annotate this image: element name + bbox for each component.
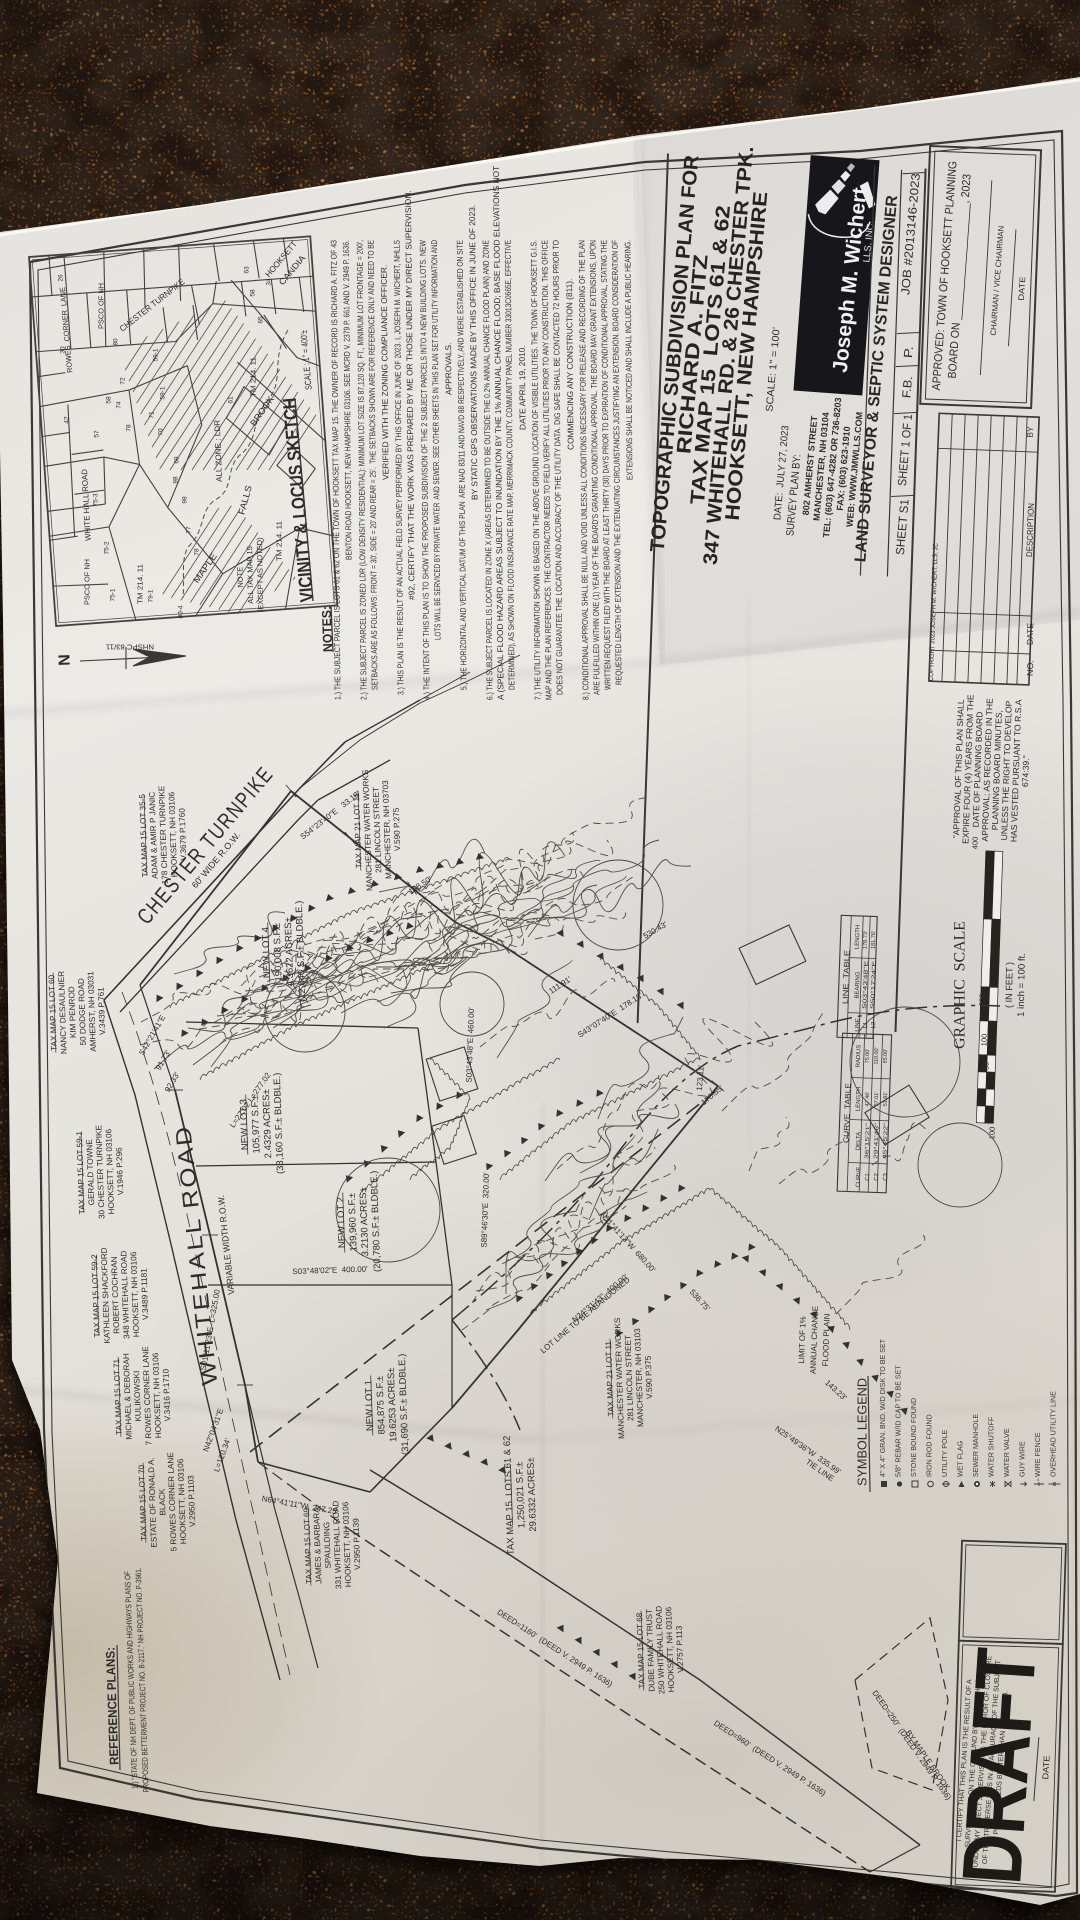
svg-text:181.76': 181.76': [871, 931, 878, 949]
svg-text:WATER SHUTOFF: WATER SHUTOFF: [988, 1416, 996, 1477]
svg-text:TM 214. 11: TM 214. 11: [137, 564, 144, 604]
svg-text:LINE TABLE: LINE TABLE: [841, 950, 852, 1004]
svg-text:26: 26: [57, 274, 64, 282]
svg-text:200: 200: [977, 994, 986, 1007]
svg-text:36°15'21": 36°15'21": [864, 1123, 871, 1159]
svg-text:34: 34: [265, 278, 272, 286]
svg-text:0: 0: [984, 1111, 993, 1115]
svg-text:45°45'22": 45°45'22": [882, 1123, 889, 1159]
svg-text:110.00': 110.00': [874, 1047, 881, 1064]
svg-text:EXTENSIONS SHALL BE NOTICED AN: EXTENSIONS SHALL BE NOTICED AND SHALL IN…: [622, 240, 634, 480]
svg-text:65.00': 65.00': [883, 1049, 890, 1064]
svg-text:63: 63: [243, 266, 250, 274]
svg-text:50: 50: [981, 1062, 990, 1071]
svg-text:79-1: 79-1: [147, 589, 154, 602]
svg-text:V.3679 P.1760: V.3679 P.1760: [178, 808, 189, 861]
svg-text:V.590 P.275: V.590 P.275: [392, 807, 403, 851]
svg-text:75-2: 75-2: [103, 541, 110, 554]
svg-text:75-3: 75-3: [92, 493, 99, 506]
svg-text:DATE: DATE: [1040, 1755, 1052, 1780]
svg-text:SEWER MANHOLE: SEWER MANHOLE: [972, 1414, 980, 1477]
svg-text:DATE APRIL 19, 2010.: DATE APRIL 19, 2010.: [517, 345, 528, 430]
svg-text:75-1: 75-1: [109, 588, 116, 601]
svg-text:GUY WIRE: GUY WIRE: [1019, 1441, 1027, 1477]
svg-text:TM 214. 11: TM 214. 11: [250, 357, 257, 397]
svg-text:BY: BY: [1025, 426, 1035, 438]
svg-text:LENGTH: LENGTH: [856, 1087, 863, 1112]
svg-text:69: 69: [173, 456, 180, 464]
svg-text:59-1: 59-1: [159, 386, 166, 399]
svg-text:V.3439 P.761: V.3439 P.761: [97, 987, 108, 1036]
svg-text:C2: C2: [874, 1172, 880, 1181]
svg-text:WET FLAG: WET FLAG: [957, 1441, 965, 1477]
svg-text:V.1946 P.296: V.1946 P.296: [115, 1147, 126, 1196]
svg-text:NHSPC 83/11: NHSPC 83/11: [106, 643, 154, 650]
svg-text:4" X 4" GRAN. BND. W/D DISK TO: 4" X 4" GRAN. BND. W/D DISK TO BE SET: [879, 1338, 887, 1477]
svg-text:WIRE FENCE: WIRE FENCE: [1034, 1432, 1042, 1477]
svg-text:70: 70: [157, 428, 164, 436]
svg-text:58: 58: [249, 289, 256, 297]
svg-text:78: 78: [125, 424, 132, 432]
svg-text:5/8" REBAR W/ID CAP TO BE SET: 5/8" REBAR W/ID CAP TO BE SET: [895, 1365, 903, 1477]
svg-text:RADIUS: RADIUS: [856, 1045, 863, 1068]
svg-text:V.2757 P.113: V.2757 P.113: [675, 1625, 686, 1673]
svg-text:DELTA: DELTA: [856, 1132, 863, 1151]
svg-text:77: 77: [185, 526, 192, 534]
svg-text:GRAPHIC SCALE: GRAPHIC SCALE: [952, 921, 969, 1049]
svg-text:58: 58: [105, 396, 112, 404]
svg-text:ALL TAX MAP 15: ALL TAX MAP 15: [245, 546, 255, 604]
svg-text:75.00': 75.00': [865, 1049, 872, 1064]
svg-text:N: N: [56, 654, 73, 666]
svg-text:DATE: DATE: [1017, 276, 1028, 301]
svg-text:IRON ROD FOUND: IRON ROD FOUND: [926, 1414, 934, 1477]
svg-text:NO.: NO.: [1025, 660, 1036, 676]
svg-text:STONE BOUND FOUND: STONE BOUND FOUND: [910, 1398, 918, 1477]
svg-text:OVERHEAD UTILITY LINE: OVERHEAD UTILITY LINE: [1050, 1391, 1058, 1477]
svg-text:BLACK: BLACK: [158, 1488, 168, 1516]
svg-text:V.2950 P.1103: V.2950 P.1103: [186, 1475, 197, 1527]
svg-text:LENGTH: LENGTH: [855, 925, 862, 950]
svg-text:65: 65: [257, 316, 264, 324]
svg-text:C3: C3: [883, 1172, 889, 1181]
svg-text:P.: P.: [901, 345, 916, 358]
svg-text:674:39.": 674:39.": [1020, 755, 1031, 787]
svg-text:COMMENCING ANY CONSTRUCTION (8: COMMENCING ANY CONSTRUCTION (811).: [564, 279, 575, 450]
svg-text:V.3416 P.1710: V.3416 P.1710: [161, 1368, 172, 1421]
svg-text:59-1: 59-1: [152, 348, 159, 361]
svg-text:DATE: DATE: [1025, 623, 1036, 646]
svg-text:57: 57: [93, 430, 100, 438]
svg-text:DESCRIPTION: DESCRIPTION: [1024, 503, 1036, 557]
svg-text:74: 74: [115, 401, 122, 409]
svg-text:NOTE :: NOTE :: [235, 563, 244, 588]
svg-text:TM 214. 11: TM 214. 11: [276, 521, 283, 561]
svg-text:98: 98: [181, 496, 188, 504]
svg-text:F.B.: F.B.: [899, 375, 915, 398]
svg-text:30: 30: [59, 346, 66, 354]
svg-text:80-4: 80-4: [177, 605, 184, 618]
svg-text:78: 78: [193, 548, 200, 556]
svg-text:CURVE: CURVE: [856, 1166, 863, 1187]
svg-text:V.2950 P.1139: V.2950 P.1139: [351, 1518, 362, 1570]
svg-text:( IN FEET ): ( IN FEET ): [1004, 962, 1016, 1008]
svg-text:APPROVALS.: APPROVALS.: [443, 343, 453, 396]
svg-text:1 inch = 100 ft.: 1 inch = 100 ft.: [1016, 953, 1028, 1017]
svg-text:(EXCEPT AS NOTED): (EXCEPT AS NOTED): [255, 537, 265, 613]
svg-text:42: 42: [63, 416, 70, 424]
svg-text:400: 400: [970, 837, 979, 850]
svg-text:80: 80: [112, 338, 119, 346]
svg-text:WATER VALVE: WATER VALVE: [1003, 1428, 1011, 1477]
svg-text:L2: L2: [871, 1021, 877, 1029]
svg-text:DRAFT: DRAFT: [944, 1645, 1053, 1887]
svg-text:SPAULDING: SPAULDING: [322, 1522, 333, 1569]
svg-text:98: 98: [172, 476, 179, 484]
svg-text:72: 72: [119, 377, 126, 385]
svg-text:LIMIT OF 1%: LIMIT OF 1%: [797, 1316, 808, 1364]
svg-text:FLOOD PLAIN: FLOOD PLAIN: [821, 1313, 832, 1366]
svg-text:PSCO OF NH: PSCO OF NH: [84, 559, 91, 605]
svg-text:SYMBOL LEGEND: SYMBOL LEGEND: [855, 1378, 870, 1486]
svg-text:100: 100: [979, 1034, 988, 1047]
svg-text:V.590 P.375: V.590 P.375: [644, 1355, 655, 1399]
svg-text:VERIFIED WITH THE ZONING COMPL: VERIFIED WITH THE ZONING COMPLIANCE OFFI…: [379, 265, 391, 480]
svg-text:V.3489 P.1181: V.3489 P.1181: [139, 1268, 150, 1320]
svg-text:71: 71: [148, 411, 155, 419]
svg-text:UTILITY POLE: UTILITY POLE: [941, 1430, 949, 1477]
svg-text:178.73': 178.73': [863, 931, 870, 949]
svg-text:PSCO OF NH: PSCO OF NH: [98, 283, 105, 329]
svg-text:BEARING: BEARING: [855, 971, 862, 999]
svg-text:L1: L1: [863, 1021, 869, 1029]
svg-text:61: 61: [227, 396, 234, 404]
svg-text:C1: C1: [865, 1172, 871, 1181]
